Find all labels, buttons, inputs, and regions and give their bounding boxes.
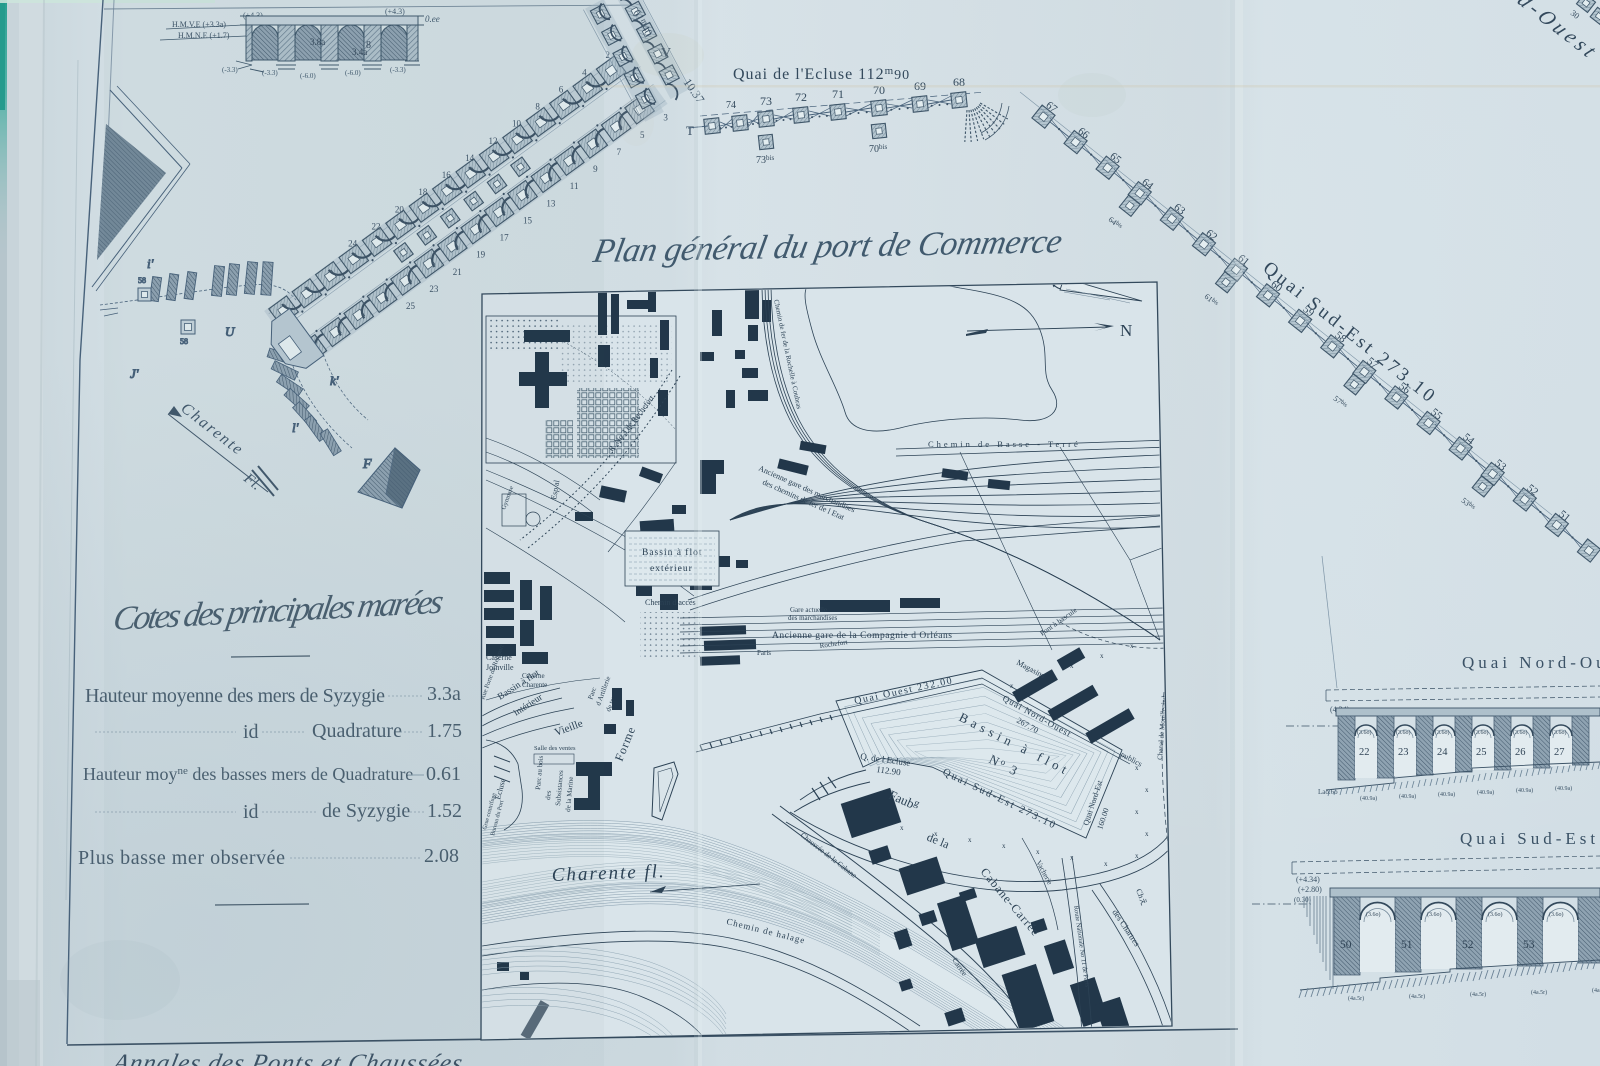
svg-text:(3.6o): (3.6o) [1366, 911, 1381, 918]
svg-text:x: x [1145, 830, 1149, 838]
svg-text:(4a.5r): (4a.5r) [1531, 989, 1547, 996]
svg-text:Chemin d accès: Chemin d accès [645, 598, 696, 607]
svg-text:x: x [1036, 848, 1040, 856]
svg-text:52: 52 [1462, 939, 1474, 951]
svg-text:x: x [1100, 652, 1104, 660]
svg-text:(3.6o): (3.6o) [1427, 911, 1442, 918]
svg-text:26: 26 [1515, 747, 1526, 758]
svg-text:Bassin à flot: Bassin à flot [642, 547, 703, 558]
svg-text:27: 27 [1554, 747, 1565, 758]
svg-text:(40.9a): (40.9a) [1516, 787, 1533, 794]
svg-text:(4a.5r): (4a.5r) [1409, 993, 1425, 1000]
svg-text:extérieur: extérieur [650, 564, 693, 574]
svg-text:71: 71 [832, 87, 844, 101]
svg-text:24: 24 [1437, 747, 1448, 758]
svg-text:x: x [1145, 786, 1149, 794]
svg-text:(3.6o): (3.6o) [1435, 729, 1450, 736]
svg-text:7: 7 [617, 147, 622, 157]
svg-text:(3.6o): (3.6o) [1488, 911, 1503, 918]
svg-text:50: 50 [1340, 939, 1352, 951]
svg-text:x: x [900, 824, 904, 832]
svg-text:25: 25 [1476, 747, 1487, 758]
svg-text:x: x [1010, 682, 1014, 690]
svg-text:(40.9a): (40.9a) [1360, 795, 1377, 802]
svg-text:(3.6o): (3.6o) [1552, 729, 1567, 736]
svg-text:(3.6o): (3.6o) [1474, 729, 1489, 736]
svg-text:Chemin de Basse - Terré: Chemin de Basse - Terré [928, 439, 1081, 449]
svg-text:51: 51 [1401, 939, 1413, 951]
svg-text:53: 53 [1523, 939, 1535, 951]
svg-text:x: x [1002, 842, 1006, 850]
svg-text:(4a.5r): (4a.5r) [1592, 987, 1600, 994]
svg-text:(40.9a): (40.9a) [1438, 791, 1455, 798]
svg-text:(+2.80): (+2.80) [1298, 885, 1322, 894]
svg-text:(4a.5r): (4a.5r) [1470, 991, 1486, 998]
svg-text:(0.30): (0.30) [1294, 896, 1312, 904]
svg-text:74: 74 [726, 100, 736, 111]
svg-text:(40.9a): (40.9a) [1477, 789, 1494, 796]
svg-text:(40.9a): (40.9a) [1555, 785, 1572, 792]
svg-text:3: 3 [663, 113, 668, 123]
svg-text:(3.6o): (3.6o) [1549, 911, 1564, 918]
svg-text:x: x [1104, 860, 1108, 868]
svg-text:Lao.6o: Lao.6o [1318, 788, 1338, 796]
svg-text:(+4.34): (+4.34) [1296, 875, 1320, 884]
svg-text:73: 73 [760, 94, 772, 108]
svg-text:x: x [968, 836, 972, 844]
svg-text:(40.9a): (40.9a) [1399, 793, 1416, 800]
svg-text:22: 22 [1359, 747, 1370, 758]
svg-text:T: T [686, 123, 694, 138]
svg-text:(4a.5r): (4a.5r) [1348, 995, 1364, 1002]
svg-text:Quai Nord-Ouest: Quai Nord-Ouest [1462, 653, 1600, 672]
svg-text:x: x [1135, 852, 1139, 860]
svg-text:x: x [1135, 808, 1139, 816]
svg-text:N: N [1120, 321, 1132, 340]
svg-text:Quai Sud-Est: Quai Sud-Est [1460, 829, 1599, 848]
svg-text:(3.6o): (3.6o) [1396, 729, 1411, 736]
svg-text:Ancienne gare de la Compagnie: Ancienne gare de la Compagnie d Orléans [772, 631, 952, 641]
svg-text:x: x [1130, 642, 1134, 650]
svg-text:72: 72 [795, 90, 807, 104]
svg-text:Paris: Paris [757, 649, 771, 657]
svg-text:Gare actuelle: Gare actuelle [790, 606, 827, 614]
svg-text:23: 23 [1398, 747, 1409, 758]
svg-text:(3.6o): (3.6o) [1357, 729, 1372, 736]
svg-text:(3.6o): (3.6o) [1513, 729, 1528, 736]
svg-text:des marchandises: des marchandises [788, 614, 837, 622]
svg-text:Quai de l'Ecluse 112m90: Quai de l'Ecluse 112m90 [733, 65, 910, 83]
